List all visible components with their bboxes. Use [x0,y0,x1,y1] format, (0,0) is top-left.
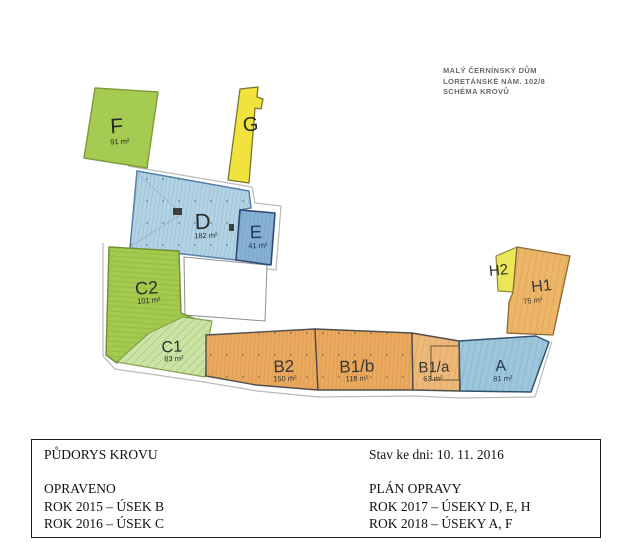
section-B2-area-label: 150 m² [273,374,297,384]
plan-title-line-2: LORETÁNSKÉ NÁM. 102/8 [443,77,603,88]
section-A-area-label: 81 m² [493,373,513,383]
repaired-heading: OPRAVENO [44,480,164,497]
section-F-label: F [110,115,124,139]
plan-title-block: MALÝ ČERNÍNSKÝ DŮM LORETÁNSKÉ NÁM. 102/8… [443,66,603,98]
section-H2-label: H2 [488,261,509,280]
section-C1-area-label: 83 m² [164,353,184,363]
section-D-area-label: 182 m² [194,231,218,241]
legend-left-column: PŮDORYS KROVU OPRAVENO ROK 2015 – ÚSEK B… [44,446,164,532]
plan-repair-heading: PLÁN OPRAVY [369,480,531,497]
plan-row-2018: ROK 2018 – ÚSEKY A, F [369,515,531,532]
chimney-mark [229,224,234,231]
plan-title-line-1: MALÝ ČERNÍNSKÝ DŮM [443,66,603,77]
skylight-mark [173,208,182,215]
document-page: F91 m²GD182 m²E41 m²C2101 m²C183 m²B2150… [0,0,632,546]
section-C2-area-label: 101 m² [137,295,161,306]
repaired-row-2015: ROK 2015 – ÚSEK B [44,498,164,515]
section-G-label: G [242,113,259,136]
legend-right-column: Stav ke dni: 10. 11. 2016 PLÁN OPRAVY RO… [369,446,531,532]
plan-title-line-3: SCHÉMA KROVŮ [443,87,603,98]
spacer-line [369,463,531,480]
courtyard-outline [184,257,267,321]
section-B2-dots [206,329,318,390]
section-B1b-area-label: 118 m² [345,374,369,384]
section-F-area-label: 91 m² [110,136,130,146]
section-E-area-label: 41 m² [248,241,268,251]
section-B1a-area-label: 63 m² [423,374,443,384]
plan-caption: PŮDORYS KROVU [44,446,164,463]
status-date: Stav ke dni: 10. 11. 2016 [369,446,531,463]
legend-info-box: PŮDORYS KROVU OPRAVENO ROK 2015 – ÚSEK B… [31,439,601,538]
spacer-line [44,463,164,480]
plan-row-2017: ROK 2017 – ÚSEKY D, E, H [369,498,531,515]
section-E-label: E [249,222,262,242]
section-A-label: A [495,358,507,376]
repaired-row-2016: ROK 2016 – ÚSEK C [44,515,164,532]
section-H1-label: H1 [530,277,552,296]
